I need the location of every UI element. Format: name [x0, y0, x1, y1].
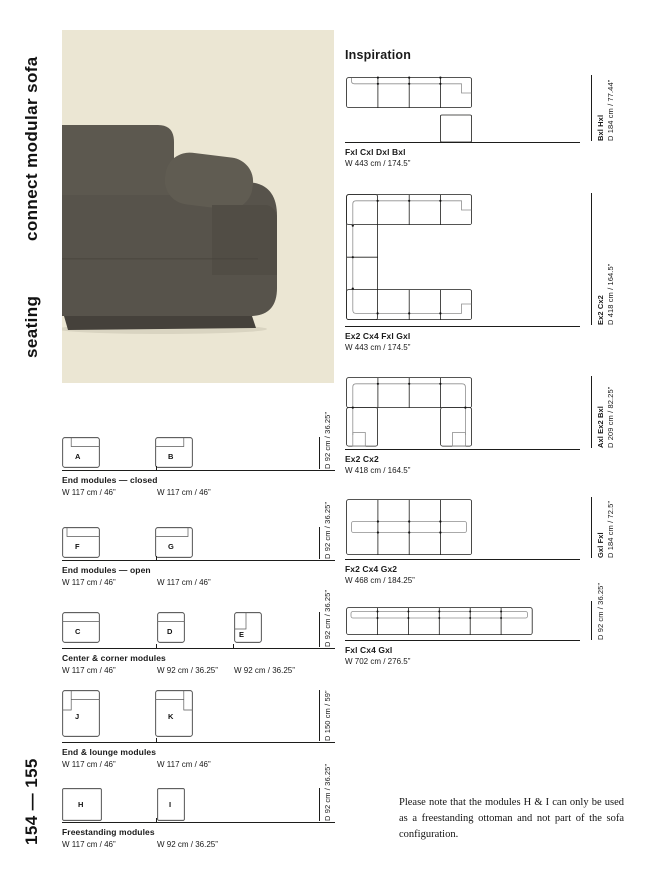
- module-width: W 117 cm / 46”: [157, 488, 211, 497]
- divider-rule: [345, 559, 580, 560]
- dimension-label: D 92 cm / 36.25”: [323, 412, 333, 469]
- dimension-line: [591, 497, 592, 558]
- module-width: W 117 cm / 46”: [62, 578, 116, 587]
- dimension-config: Ex2 Cx2: [596, 264, 606, 325]
- module-width: W 117 cm / 46”: [157, 578, 211, 587]
- dimension-label: D 92 cm / 36.25”: [323, 764, 333, 821]
- module-letter: H: [78, 800, 83, 809]
- config-width: W 418 cm / 164.5”: [345, 466, 410, 475]
- module-letter: K: [168, 712, 173, 721]
- dimension-config: Gxl Fxl: [596, 501, 606, 558]
- config-diagram-2: [346, 194, 474, 322]
- config-diagram-4: [346, 499, 474, 556]
- dimension-label: D 92 cm / 36.25”: [323, 590, 333, 647]
- divider-rule: [345, 449, 580, 450]
- dimension-label: Bxl Hxl D 184 cm / 77.44”: [596, 80, 615, 141]
- module-E: E: [234, 612, 262, 643]
- divider-rule: [62, 470, 335, 471]
- dimension-label: D 92 cm / 36.25”: [323, 502, 333, 559]
- dimension-line: [591, 75, 592, 141]
- sofa-illustration: [62, 30, 334, 383]
- divider-rule: [62, 648, 335, 649]
- module-width: W 117 cm / 46”: [62, 666, 116, 675]
- module-row-title: Center & corner modules: [62, 653, 166, 663]
- module-D: D: [157, 612, 185, 643]
- module-I: I: [157, 788, 185, 821]
- config-width: W 443 cm / 174.5”: [345, 159, 410, 168]
- dimension-depth: D 209 cm / 82.25”: [606, 387, 616, 448]
- dimension-config: Axl Ex2 Bxl: [596, 387, 606, 448]
- module-letter: F: [75, 542, 80, 551]
- config-name: Fx2 Cx4 Gx2: [345, 564, 397, 574]
- dimension-line: [319, 612, 320, 647]
- module-row-title: End & lounge modules: [62, 747, 156, 757]
- config-width: W 702 cm / 276.5”: [345, 657, 410, 666]
- divider-rule: [345, 640, 580, 641]
- dimension-depth: D 92 cm / 36.25”: [323, 764, 333, 821]
- module-J: J: [62, 690, 100, 737]
- dimension-depth: D 184 cm / 77.44”: [606, 80, 616, 141]
- dimension-label: Axl Ex2 Bxl D 209 cm / 82.25”: [596, 387, 615, 448]
- module-K: K: [155, 690, 193, 737]
- dimension-line: [591, 376, 592, 448]
- module-B: B: [155, 437, 193, 468]
- module-H: H: [62, 788, 102, 821]
- module-G: G: [155, 527, 193, 558]
- config-diagram-5: [346, 607, 534, 636]
- dimension-label: D 150 cm / 59”: [323, 690, 333, 741]
- dimension-depth: D 92 cm / 36.25”: [323, 412, 333, 469]
- module-width: W 92 cm / 36.25”: [234, 666, 295, 675]
- dimension-label: D 92 cm / 36.25”: [596, 583, 606, 640]
- module-letter: C: [75, 627, 80, 636]
- config-width: W 443 cm / 174.5”: [345, 343, 410, 352]
- dimension-depth: D 184 cm / 72.5”: [606, 501, 616, 558]
- category-label-vertical: seating: [22, 296, 42, 358]
- divider-rule: [62, 822, 335, 823]
- config-name: Fxl Cx4 Gxl: [345, 645, 392, 655]
- module-A: A: [62, 437, 100, 468]
- dimension-depth: D 92 cm / 36.25”: [323, 502, 333, 559]
- module-letter: I: [169, 800, 171, 809]
- divider-rule: [62, 560, 335, 561]
- module-width: W 117 cm / 46”: [157, 760, 211, 769]
- module-width: W 92 cm / 36.25”: [157, 840, 218, 849]
- module-width: W 92 cm / 36.25”: [157, 666, 218, 675]
- divider-rule: [345, 326, 580, 327]
- dimension-depth: D 418 cm / 164.5”: [606, 264, 616, 325]
- module-row-title: Freestanding modules: [62, 827, 155, 837]
- module-letter: D: [167, 627, 172, 636]
- dimension-line: [591, 193, 592, 325]
- module-width: W 117 cm / 46”: [62, 488, 116, 497]
- module-letter: G: [168, 542, 174, 551]
- dimension-config: Bxl Hxl: [596, 80, 606, 141]
- config-name: Ex2 Cx2: [345, 454, 379, 464]
- footnote: Please note that the modules H & I can o…: [399, 795, 624, 842]
- divider-rule: [345, 142, 580, 143]
- dimension-line: [319, 437, 320, 469]
- dimension-line: [319, 788, 320, 821]
- catalog-page: connect modular sofa seating 154 — 155 I…: [0, 0, 645, 871]
- module-row-title: End modules — open: [62, 565, 151, 575]
- page-numbers-vertical: 154 — 155: [22, 758, 42, 845]
- config-diagram-1: [346, 77, 474, 143]
- sofa-photo: [62, 30, 334, 383]
- dimension-depth: D 92 cm / 36.25”: [323, 590, 333, 647]
- module-width: W 117 cm / 46”: [62, 840, 116, 849]
- divider-rule: [62, 742, 335, 743]
- product-title-vertical: connect modular sofa: [22, 56, 42, 241]
- module-letter: B: [168, 452, 173, 461]
- config-diagram-3: [346, 377, 474, 447]
- dimension-depth: D 92 cm / 36.25”: [596, 583, 606, 640]
- dimension-line: [319, 690, 320, 741]
- module-row-title: End modules — closed: [62, 475, 158, 485]
- module-C: C: [62, 612, 100, 643]
- module-F: F: [62, 527, 100, 558]
- config-name: Ex2 Cx4 Fxl Gxl: [345, 331, 410, 341]
- dimension-label: Gxl Fxl D 184 cm / 72.5”: [596, 501, 615, 558]
- module-letter: A: [75, 452, 80, 461]
- dimension-label: Ex2 Cx2 D 418 cm / 164.5”: [596, 264, 615, 325]
- dimension-line: [591, 601, 592, 640]
- module-letter: J: [75, 712, 79, 721]
- module-width: W 117 cm / 46”: [62, 760, 116, 769]
- config-name: Fxl Cxl Dxl Bxl: [345, 147, 406, 157]
- dimension-depth: D 150 cm / 59”: [323, 690, 333, 741]
- inspiration-heading: Inspiration: [345, 48, 411, 62]
- dimension-line: [319, 527, 320, 559]
- config-width: W 468 cm / 184.25”: [345, 576, 415, 585]
- module-letter: E: [239, 630, 244, 639]
